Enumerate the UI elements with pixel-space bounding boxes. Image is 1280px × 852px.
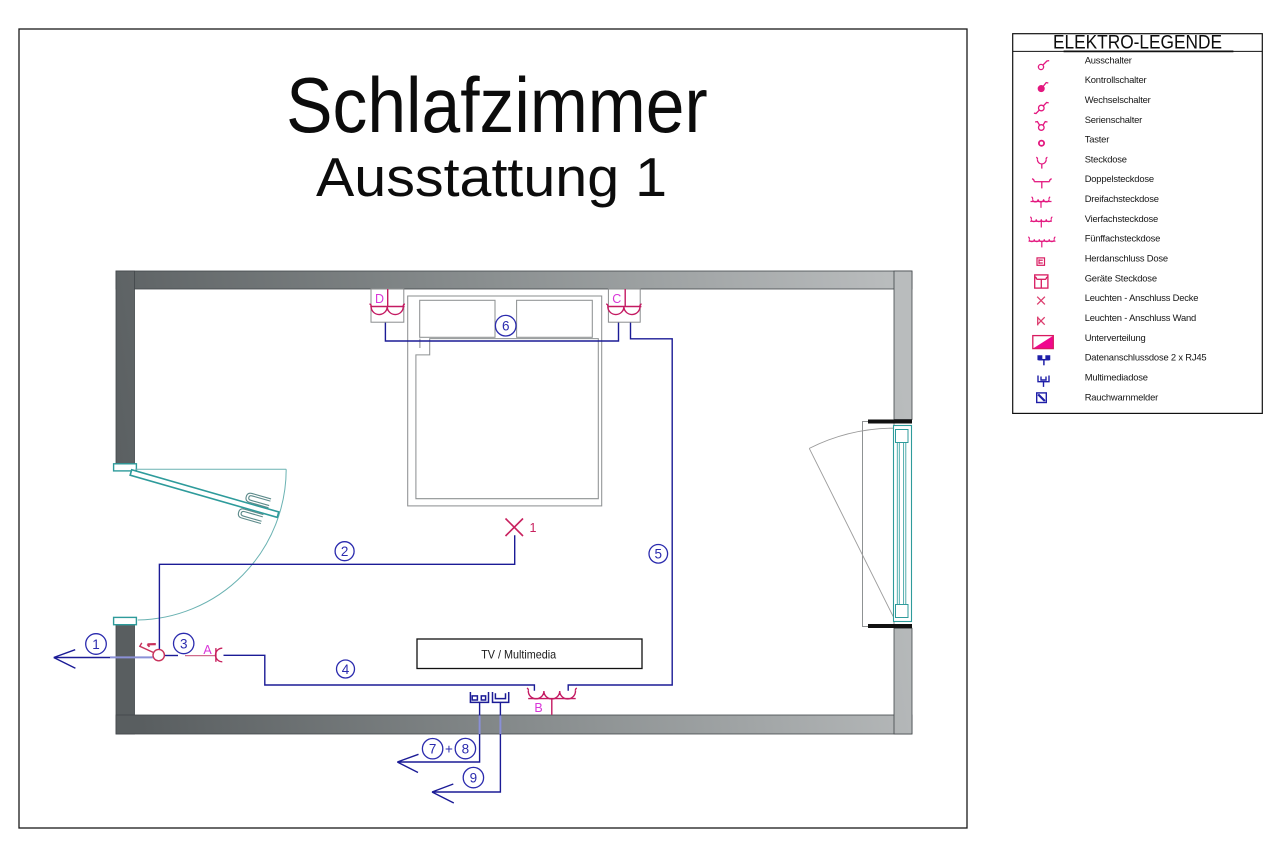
svg-text:2: 2 [341,544,349,559]
svg-text:Doppelsteckdose: Doppelsteckdose [1085,173,1154,184]
svg-text:Dreifachsteckdose: Dreifachsteckdose [1085,193,1159,204]
svg-text:Serienschalter: Serienschalter [1085,114,1142,125]
svg-text:3: 3 [180,636,188,651]
svg-text:Fünffachsteckdose: Fünffachsteckdose [1085,233,1160,244]
svg-text:4: 4 [342,662,350,677]
svg-text:+: + [445,742,453,757]
svg-text:1: 1 [530,521,537,535]
svg-text:Datenanschlussdose 2 x RJ45: Datenanschlussdose 2 x RJ45 [1085,352,1207,363]
svg-text:Ausstattung 1: Ausstattung 1 [316,146,667,208]
svg-text:B: B [534,701,542,715]
svg-text:Geräte Steckdose: Geräte Steckdose [1085,272,1157,283]
svg-text:Wechselschalter: Wechselschalter [1085,94,1151,105]
svg-text:8: 8 [462,741,470,756]
svg-text:Rauchwarnmelder: Rauchwarnmelder [1085,391,1158,402]
svg-text:Steckdose: Steckdose [1085,153,1127,164]
svg-text:Ausschalter: Ausschalter [1085,54,1132,65]
svg-text:C: C [612,292,621,306]
svg-text:1: 1 [92,637,100,652]
svg-text:TV / Multimedia: TV / Multimedia [481,648,556,662]
svg-text:Vierfachsteckdose: Vierfachsteckdose [1085,213,1158,224]
svg-text:Leuchten - Anschluss Decke: Leuchten - Anschluss Decke [1085,292,1199,303]
svg-text:D: D [375,292,384,306]
svg-text:Multimediadose: Multimediadose [1085,372,1148,383]
svg-text:5: 5 [655,547,663,562]
svg-text:7: 7 [429,742,437,757]
svg-text:ELEKTRO-LEGENDE: ELEKTRO-LEGENDE [1053,33,1222,54]
svg-text:6: 6 [502,319,510,334]
svg-text:Kontrollschalter: Kontrollschalter [1085,74,1147,85]
svg-text:9: 9 [470,770,478,785]
svg-text:Taster: Taster [1085,134,1110,145]
svg-text:Schlafzimmer: Schlafzimmer [286,61,708,149]
svg-text:A: A [203,643,212,657]
svg-text:Unterverteilung: Unterverteilung [1085,332,1146,343]
svg-text:Leuchten - Anschluss Wand: Leuchten - Anschluss Wand [1085,312,1196,323]
svg-text:Herdanschluss Dose: Herdanschluss Dose [1085,253,1168,264]
